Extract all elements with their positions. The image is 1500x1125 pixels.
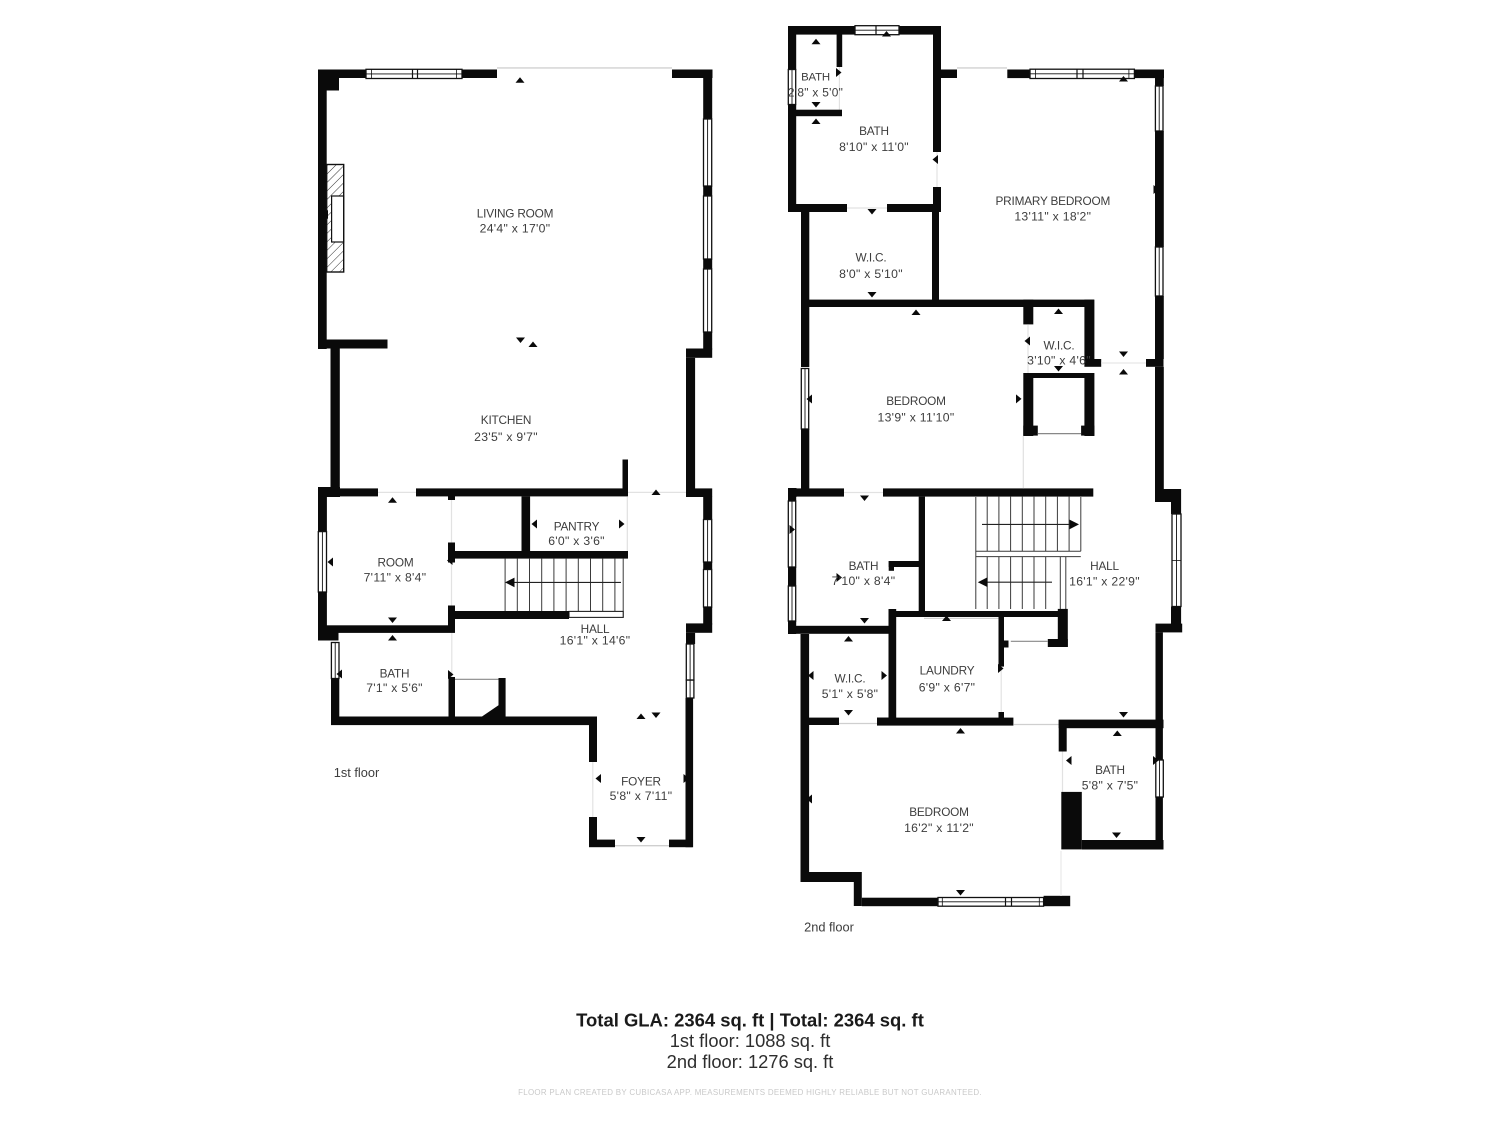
svg-text:LAUNDRY: LAUNDRY	[920, 664, 975, 678]
svg-text:7'11" x 8'4": 7'11" x 8'4"	[364, 570, 427, 584]
svg-text:16'2" x 11'2": 16'2" x 11'2"	[904, 821, 974, 835]
svg-text:FLOOR PLAN CREATED BY CUBICASA: FLOOR PLAN CREATED BY CUBICASA APP. MEAS…	[518, 1088, 982, 1097]
svg-text:BATH: BATH	[1095, 763, 1125, 777]
svg-text:5'8" x 7'11": 5'8" x 7'11"	[610, 789, 673, 803]
svg-text:6'0" x 3'6": 6'0" x 3'6"	[548, 534, 605, 548]
svg-text:1st floor: 1st floor	[334, 765, 380, 780]
svg-text:W.I.C.: W.I.C.	[856, 251, 887, 265]
svg-text:7'1" x 5'6": 7'1" x 5'6"	[366, 681, 423, 695]
svg-text:LIVING ROOM: LIVING ROOM	[477, 207, 553, 221]
svg-text:W.I.C.: W.I.C.	[835, 672, 866, 686]
svg-text:5'1" x 5'8": 5'1" x 5'8"	[822, 687, 879, 701]
svg-text:23'5" x 9'7": 23'5" x 9'7"	[474, 430, 538, 444]
svg-text:1st floor: 1088 sq. ft: 1st floor: 1088 sq. ft	[670, 1030, 831, 1051]
svg-text:KITCHEN: KITCHEN	[481, 413, 531, 427]
svg-text:PANTRY: PANTRY	[554, 520, 600, 534]
svg-text:Total GLA: 2364 sq. ft | Total: Total GLA: 2364 sq. ft | Total: 2364 sq.…	[576, 1010, 924, 1031]
svg-text:BEDROOM: BEDROOM	[886, 394, 946, 408]
svg-text:BATH: BATH	[849, 559, 879, 573]
svg-text:16'1" x 14'6": 16'1" x 14'6"	[560, 633, 631, 647]
svg-text:8'0" x 5'10": 8'0" x 5'10"	[839, 267, 903, 281]
svg-text:13'11" x 18'2": 13'11" x 18'2"	[1014, 210, 1091, 224]
svg-text:W.I.C.: W.I.C.	[1044, 339, 1075, 353]
svg-text:24'4" x 17'0": 24'4" x 17'0"	[480, 222, 551, 236]
svg-text:BATH: BATH	[380, 666, 410, 680]
svg-text:16'1" x 22'9": 16'1" x 22'9"	[1069, 575, 1140, 589]
svg-text:BATH: BATH	[859, 124, 889, 138]
svg-text:8'10" x 11'0": 8'10" x 11'0"	[839, 140, 909, 154]
svg-text:3'10" x 4'6": 3'10" x 4'6"	[1027, 353, 1091, 367]
svg-text:2nd floor: 1276 sq. ft: 2nd floor: 1276 sq. ft	[667, 1051, 834, 1072]
svg-text:BEDROOM: BEDROOM	[909, 805, 969, 819]
svg-text:5'8" x 7'5": 5'8" x 7'5"	[1082, 778, 1139, 792]
svg-text:FOYER: FOYER	[621, 774, 661, 788]
svg-text:ROOM: ROOM	[378, 556, 414, 570]
svg-text:6'9" x 6'7": 6'9" x 6'7"	[919, 681, 976, 695]
svg-text:7'10" x 8'4": 7'10" x 8'4"	[832, 574, 896, 588]
svg-text:2nd floor: 2nd floor	[804, 920, 855, 935]
svg-text:13'9" x 11'10": 13'9" x 11'10"	[878, 410, 955, 424]
svg-text:2'8" x 5'0": 2'8" x 5'0"	[788, 86, 843, 100]
svg-text:BATH: BATH	[801, 72, 830, 84]
svg-text:HALL: HALL	[1090, 559, 1119, 573]
svg-text:PRIMARY BEDROOM: PRIMARY BEDROOM	[996, 194, 1111, 208]
